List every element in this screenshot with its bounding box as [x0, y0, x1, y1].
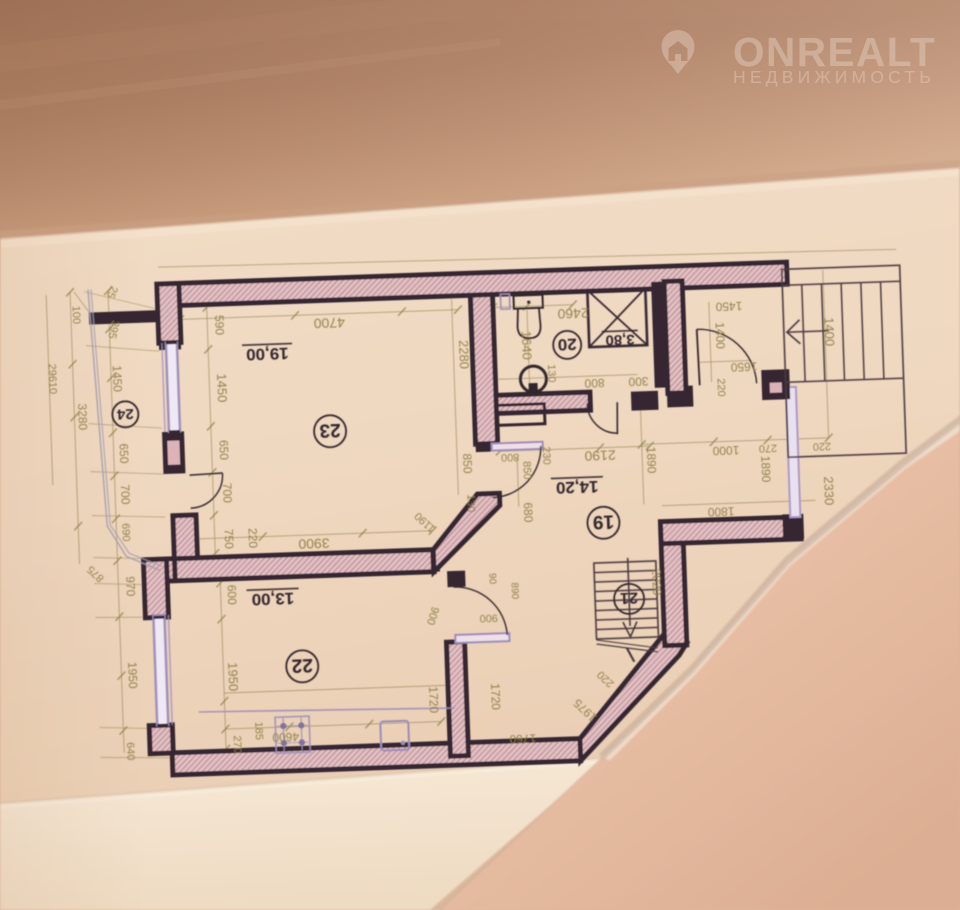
svg-text:130: 130 [464, 494, 477, 513]
svg-text:300: 300 [628, 374, 649, 389]
svg-text:1000: 1000 [712, 443, 739, 458]
svg-text:680: 680 [521, 502, 536, 523]
svg-text:100: 100 [70, 306, 83, 325]
svg-text:650: 650 [116, 443, 131, 464]
svg-text:2020: 2020 [649, 568, 664, 595]
svg-text:1760: 1760 [509, 731, 536, 746]
svg-text:970: 970 [123, 576, 138, 597]
svg-text:220: 220 [813, 440, 832, 453]
svg-text:690: 690 [119, 523, 132, 542]
svg-text:700: 700 [118, 484, 133, 505]
svg-text:890: 890 [508, 582, 520, 599]
svg-text:23: 23 [319, 419, 341, 441]
svg-text:2330: 2330 [821, 476, 837, 505]
svg-text:1450: 1450 [214, 373, 230, 402]
svg-text:1800: 1800 [707, 504, 734, 519]
svg-text:1890: 1890 [758, 455, 773, 482]
svg-text:850: 850 [460, 453, 475, 474]
svg-text:230: 230 [540, 446, 553, 465]
svg-text:185: 185 [252, 722, 265, 741]
svg-text:4600: 4600 [272, 729, 299, 744]
svg-text:270: 270 [759, 442, 778, 455]
svg-text:3900: 3900 [298, 535, 330, 552]
svg-text:220: 220 [714, 378, 727, 397]
svg-text:750: 750 [221, 529, 236, 550]
svg-text:1400: 1400 [821, 317, 837, 346]
svg-text:640: 640 [124, 742, 137, 761]
svg-text:1450: 1450 [110, 365, 125, 392]
svg-text:19: 19 [592, 510, 614, 532]
svg-text:850: 850 [520, 461, 533, 480]
svg-text:900: 900 [479, 611, 498, 624]
svg-text:90: 90 [486, 573, 497, 585]
svg-text:19,00: 19,00 [246, 344, 289, 364]
svg-text:800: 800 [501, 451, 520, 464]
svg-text:1720: 1720 [426, 686, 441, 713]
svg-text:20: 20 [557, 335, 577, 355]
svg-text:3,80: 3,80 [605, 331, 635, 349]
svg-text:29610: 29610 [46, 363, 59, 394]
svg-text:1640: 1640 [519, 331, 535, 360]
svg-text:600: 600 [224, 584, 239, 605]
svg-text:800: 800 [584, 376, 605, 391]
svg-text:13,00: 13,00 [251, 589, 294, 609]
svg-text:1720: 1720 [488, 683, 503, 710]
svg-text:1450: 1450 [715, 299, 742, 314]
svg-text:24: 24 [116, 405, 134, 423]
svg-text:3280: 3280 [75, 403, 90, 430]
svg-text:4700: 4700 [313, 315, 345, 332]
svg-text:1890: 1890 [644, 446, 659, 473]
svg-text:1650: 1650 [730, 359, 757, 374]
svg-text:2280: 2280 [456, 340, 472, 369]
svg-text:2190: 2190 [584, 447, 616, 464]
svg-text:22: 22 [291, 654, 313, 676]
svg-text:НЕДВИЖИМОСТЬ: НЕДВИЖИМОСТЬ [733, 67, 935, 87]
svg-text:220: 220 [245, 528, 260, 549]
svg-text:1950: 1950 [225, 662, 241, 691]
svg-text:130: 130 [545, 364, 558, 383]
svg-text:700: 700 [220, 483, 235, 504]
svg-text:2460: 2460 [557, 305, 589, 322]
svg-text:21: 21 [620, 589, 638, 607]
svg-text:270: 270 [231, 735, 244, 754]
svg-text:14,20: 14,20 [556, 477, 599, 497]
svg-text:590: 590 [212, 315, 227, 336]
svg-text:1950: 1950 [125, 662, 140, 689]
svg-text:1400: 1400 [713, 322, 728, 349]
svg-text:650: 650 [216, 440, 231, 461]
